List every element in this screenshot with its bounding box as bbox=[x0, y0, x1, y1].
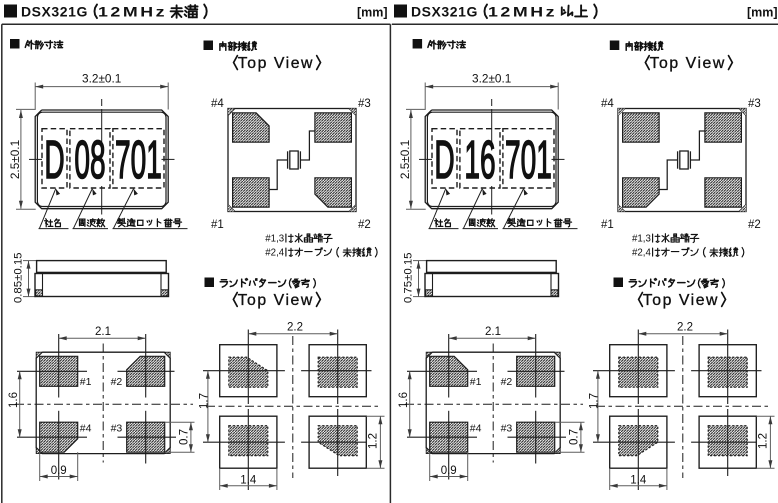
svg-text:1.2: 1.2 bbox=[758, 433, 770, 449]
svg-text:0.9: 0.9 bbox=[441, 465, 457, 477]
svg-text:12MHz: 12MHz bbox=[98, 5, 167, 20]
svg-text:Top View: Top View bbox=[238, 292, 314, 309]
svg-text:#4: #4 bbox=[470, 423, 482, 435]
svg-text:16: 16 bbox=[464, 130, 495, 190]
svg-text:0.9: 0.9 bbox=[51, 465, 67, 477]
svg-text:D: D bbox=[44, 130, 64, 190]
svg-text:701: 701 bbox=[505, 130, 552, 190]
svg-text:1.4: 1.4 bbox=[240, 474, 257, 486]
svg-text:#3: #3 bbox=[501, 423, 513, 435]
svg-text:DSX321G: DSX321G bbox=[21, 4, 88, 20]
svg-text:2.5±0.1: 2.5±0.1 bbox=[398, 140, 412, 179]
svg-text:0.75±0.15: 0.75±0.15 bbox=[403, 253, 415, 304]
svg-text:#4: #4 bbox=[601, 98, 614, 110]
svg-text:#1: #1 bbox=[601, 219, 614, 231]
svg-text:2.2: 2.2 bbox=[287, 321, 303, 333]
svg-text:#2,4: #2,4 bbox=[632, 248, 651, 259]
svg-text:0.7: 0.7 bbox=[179, 429, 191, 445]
svg-text:Top View: Top View bbox=[643, 292, 719, 309]
svg-text:#2: #2 bbox=[111, 376, 123, 388]
svg-text:2.1: 2.1 bbox=[485, 326, 501, 338]
svg-text:1.6: 1.6 bbox=[398, 392, 410, 408]
svg-text:08: 08 bbox=[74, 130, 105, 190]
svg-text:2.5±0.1: 2.5±0.1 bbox=[8, 140, 22, 179]
svg-text:#1: #1 bbox=[80, 376, 92, 388]
svg-text:#3: #3 bbox=[358, 98, 371, 110]
svg-text:DSX321G: DSX321G bbox=[411, 4, 478, 20]
svg-text:#2: #2 bbox=[501, 376, 513, 388]
svg-text:1.4: 1.4 bbox=[630, 474, 647, 486]
svg-text:1.7: 1.7 bbox=[588, 393, 600, 409]
svg-text:1.6: 1.6 bbox=[8, 392, 20, 408]
svg-text:1.7: 1.7 bbox=[198, 393, 210, 409]
svg-text:2.2: 2.2 bbox=[677, 321, 693, 333]
svg-text:3.2±0.1: 3.2±0.1 bbox=[82, 72, 121, 86]
svg-text:#1,3: #1,3 bbox=[265, 234, 284, 245]
svg-text:12MHz: 12MHz bbox=[488, 5, 557, 20]
svg-text:1.2: 1.2 bbox=[368, 433, 380, 449]
svg-text:Top View: Top View bbox=[650, 55, 726, 72]
svg-text:#1: #1 bbox=[211, 219, 224, 231]
svg-text:#2: #2 bbox=[748, 219, 761, 231]
svg-text:0.85±0.15: 0.85±0.15 bbox=[13, 253, 25, 304]
svg-text:#2: #2 bbox=[358, 219, 371, 231]
svg-text:0.7: 0.7 bbox=[569, 429, 581, 445]
svg-text:3.2±0.1: 3.2±0.1 bbox=[472, 72, 511, 86]
svg-text:[mm]: [mm] bbox=[357, 6, 388, 20]
svg-text:#3: #3 bbox=[748, 98, 761, 110]
svg-text:[mm]: [mm] bbox=[747, 6, 778, 20]
svg-text:#4: #4 bbox=[80, 423, 92, 435]
svg-text:Top View: Top View bbox=[238, 55, 314, 72]
svg-text:#4: #4 bbox=[211, 98, 224, 110]
svg-text:#1,3: #1,3 bbox=[632, 234, 651, 245]
svg-text:#2,4: #2,4 bbox=[265, 248, 284, 259]
svg-text:D: D bbox=[434, 130, 454, 190]
svg-text:701: 701 bbox=[115, 130, 162, 190]
svg-text:2.1: 2.1 bbox=[95, 326, 111, 338]
svg-text:#1: #1 bbox=[470, 376, 482, 388]
svg-text:#3: #3 bbox=[111, 423, 123, 435]
